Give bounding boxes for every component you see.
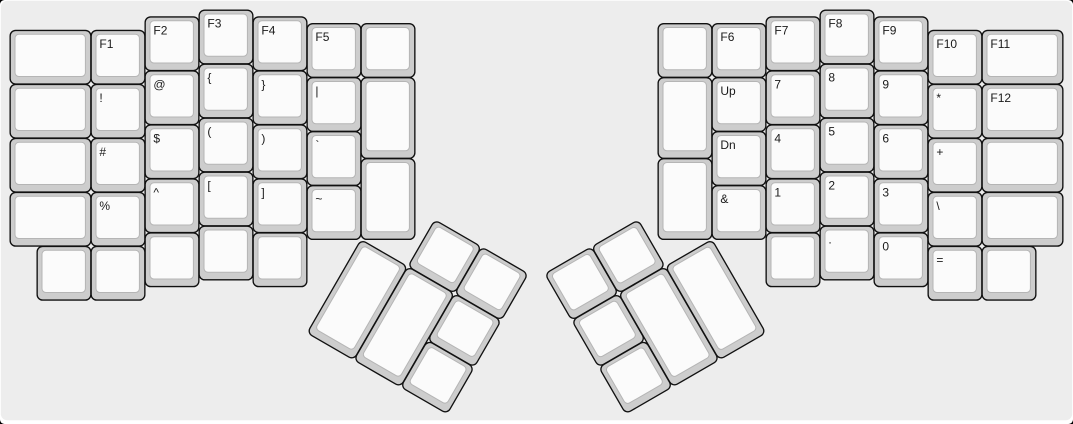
svg-text:F3: F3 <box>207 17 221 31</box>
svg-text:^: ^ <box>153 185 159 199</box>
svg-text:F6: F6 <box>720 30 734 44</box>
svg-text:}: } <box>261 77 265 91</box>
svg-text:2: 2 <box>828 179 835 193</box>
svg-text:F2: F2 <box>153 23 167 37</box>
svg-text:F5: F5 <box>315 30 329 44</box>
svg-text:8: 8 <box>828 71 835 85</box>
svg-text:3: 3 <box>882 185 889 199</box>
svg-text:1: 1 <box>774 185 781 199</box>
svg-text:F7: F7 <box>774 23 788 37</box>
svg-text:Up: Up <box>720 84 736 98</box>
svg-text:+: + <box>936 145 943 159</box>
svg-text:9: 9 <box>882 77 889 91</box>
svg-text:Dn: Dn <box>720 138 735 152</box>
svg-text:#: # <box>99 145 106 159</box>
svg-text:{: { <box>207 71 211 85</box>
svg-text:F4: F4 <box>261 23 275 37</box>
svg-text:4: 4 <box>774 131 781 145</box>
svg-text:F8: F8 <box>828 17 842 31</box>
svg-text:F1: F1 <box>99 37 113 51</box>
svg-text:6: 6 <box>882 131 889 145</box>
svg-text:$: $ <box>153 131 160 145</box>
svg-text:=: = <box>936 253 943 267</box>
svg-text:F10: F10 <box>936 37 957 51</box>
svg-text:`: ` <box>315 138 319 152</box>
svg-text:F9: F9 <box>882 23 896 37</box>
svg-text:!: ! <box>99 91 102 105</box>
svg-text:F11: F11 <box>990 37 1010 51</box>
svg-text:0: 0 <box>882 239 889 253</box>
svg-text:]: ] <box>261 185 264 199</box>
svg-text:(: ( <box>207 125 211 139</box>
svg-text:): ) <box>261 131 265 145</box>
svg-text:@: @ <box>153 77 165 91</box>
svg-text:~: ~ <box>315 192 322 206</box>
svg-text:*: * <box>936 91 941 105</box>
svg-text:%: % <box>99 199 110 213</box>
svg-text:|: | <box>315 84 318 98</box>
svg-text:&: & <box>720 192 728 206</box>
svg-text:F12: F12 <box>990 91 1011 105</box>
svg-text:.: . <box>828 233 831 247</box>
svg-text:5: 5 <box>828 125 835 139</box>
svg-text:7: 7 <box>774 77 781 91</box>
